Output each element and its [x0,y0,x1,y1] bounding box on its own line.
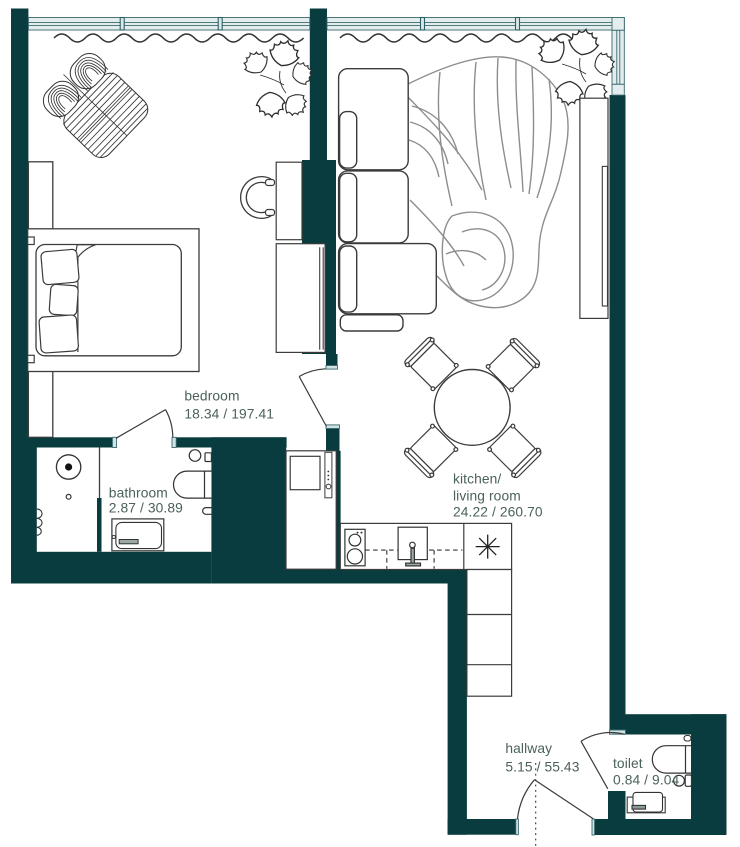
svg-text:living room: living room [453,488,521,503]
svg-text:24.22 / 260.70: 24.22 / 260.70 [453,505,543,520]
svg-text:5.15 / 55.43: 5.15 / 55.43 [505,759,579,774]
svg-text:0.84 / 9.04: 0.84 / 9.04 [613,772,680,787]
svg-text:toilet: toilet [613,756,643,771]
svg-text:hallway: hallway [505,741,552,756]
svg-text:kitchen/: kitchen/ [453,471,501,486]
svg-text:bedroom: bedroom [184,389,239,404]
svg-text:18.34 / 197.41: 18.34 / 197.41 [184,406,274,421]
svg-text:bathroom: bathroom [109,486,168,501]
svg-text:2.87 / 30.89: 2.87 / 30.89 [109,501,183,516]
